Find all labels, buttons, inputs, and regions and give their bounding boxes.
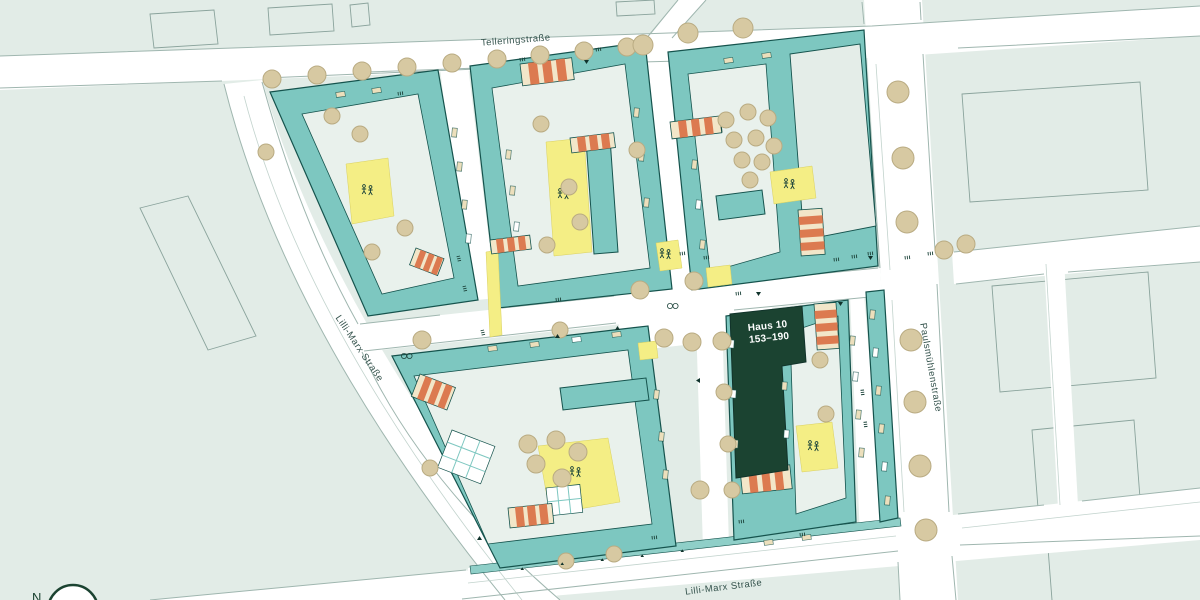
playground-area: [546, 138, 592, 256]
orange-building: [814, 302, 839, 349]
playground-area: [770, 166, 816, 204]
playground-area: [796, 422, 838, 472]
site-plan-map: Haus 10 153–190: [0, 0, 1200, 600]
compass-north-label: N: [32, 590, 41, 600]
haus-10-label: Haus 10 153–190: [747, 319, 790, 346]
site-plan: Haus 10 153–190: [0, 0, 1200, 600]
playground-area: [346, 158, 394, 224]
orange-building: [798, 208, 825, 256]
orange-building: [508, 503, 554, 527]
